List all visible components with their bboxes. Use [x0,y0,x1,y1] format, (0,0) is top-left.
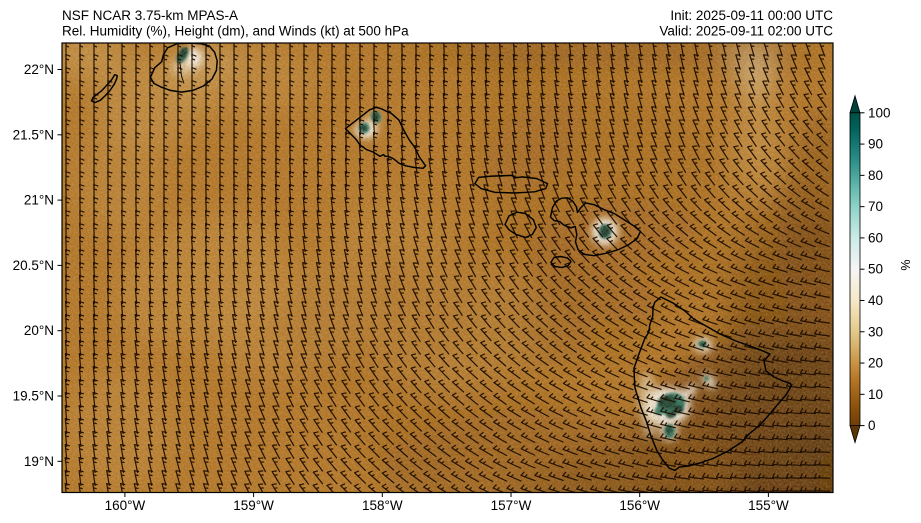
svg-text:22°N: 22°N [24,62,54,77]
svg-text:20: 20 [868,356,883,371]
svg-text:%: % [898,259,912,270]
svg-text:19°N: 19°N [24,454,54,469]
svg-text:60: 60 [868,230,883,245]
svg-text:21.5°N: 21.5°N [13,127,54,142]
svg-text:90: 90 [868,137,883,152]
svg-text:21°N: 21°N [24,193,54,208]
svg-text:50: 50 [868,262,883,277]
svg-text:Rel. Humidity (%), Height (dm): Rel. Humidity (%), Height (dm), and Wind… [62,24,409,39]
svg-text:10: 10 [868,387,883,402]
svg-text:Valid: 2025-09-11 02:00 UTC: Valid: 2025-09-11 02:00 UTC [659,24,833,39]
svg-text:30: 30 [868,324,883,339]
svg-text:NSF NCAR 3.75-km MPAS-A: NSF NCAR 3.75-km MPAS-A [62,8,238,23]
svg-text:100: 100 [868,105,891,120]
svg-text:0: 0 [868,418,876,433]
svg-text:158°W: 158°W [362,498,403,513]
svg-text:157°W: 157°W [491,498,532,513]
svg-text:160°W: 160°W [105,498,146,513]
svg-text:159°W: 159°W [233,498,274,513]
svg-text:40: 40 [868,293,883,308]
svg-text:19.5°N: 19.5°N [13,389,54,404]
svg-text:20°N: 20°N [24,323,54,338]
svg-text:80: 80 [868,168,883,183]
svg-text:20.5°N: 20.5°N [13,258,54,273]
svg-text:Init: 2025-09-11 00:00 UTC: Init: 2025-09-11 00:00 UTC [670,8,833,23]
svg-text:155°W: 155°W [748,498,789,513]
svg-text:156°W: 156°W [619,498,660,513]
svg-text:70: 70 [868,199,883,214]
